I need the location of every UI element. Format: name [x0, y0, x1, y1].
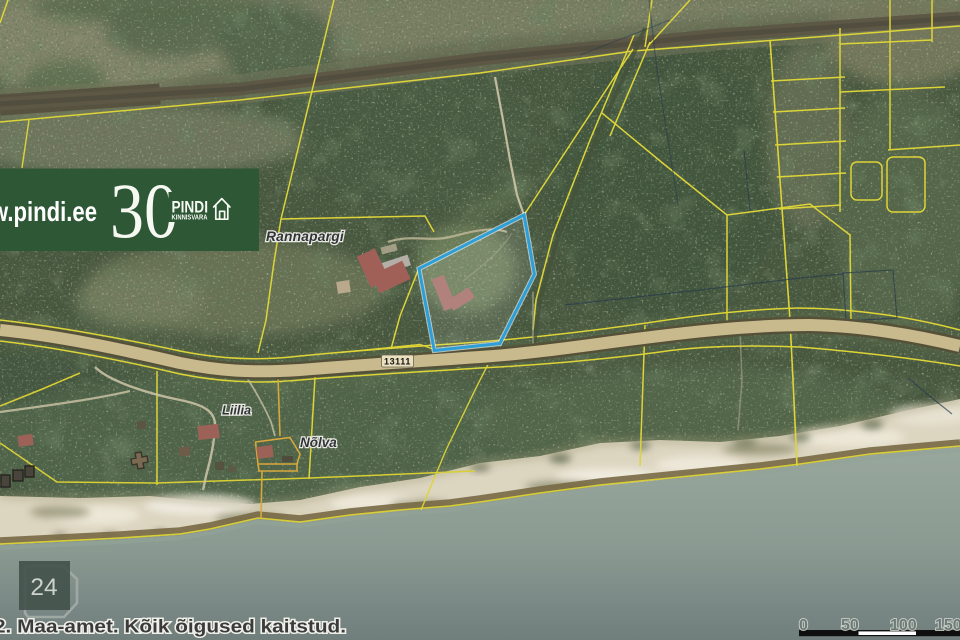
svg-text:w.pindi.ee: w.pindi.ee: [0, 196, 97, 227]
svg-text:KINNISVARA: KINNISVARA: [172, 213, 208, 222]
svg-text:Nõlva: Nõlva: [300, 435, 337, 450]
svg-text:Liilia: Liilia: [222, 403, 251, 418]
svg-text:0: 0: [799, 617, 808, 634]
svg-text:Rannapargi: Rannapargi: [266, 229, 345, 244]
svg-text:150: 150: [935, 617, 960, 634]
svg-text:24: 24: [30, 574, 57, 601]
svg-text:2. Maa-amet. Kõik õigused kait: 2. Maa-amet. Kõik õigused kaitstud.: [0, 616, 346, 637]
svg-text:30: 30: [110, 167, 178, 254]
svg-text:13111: 13111: [384, 356, 411, 366]
svg-text:100: 100: [890, 617, 917, 634]
svg-text:50: 50: [841, 617, 859, 634]
